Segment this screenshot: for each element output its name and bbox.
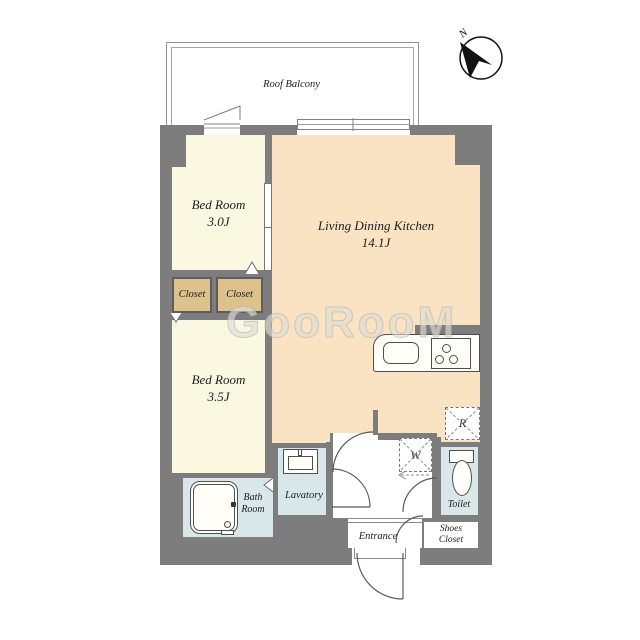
north-arrow-icon xyxy=(460,42,492,78)
compass-circle xyxy=(460,37,502,79)
toilet-bowl xyxy=(452,460,472,496)
ldk-label: Living Dining Kitchen14.1J xyxy=(272,218,480,251)
closet-1-label: Closet xyxy=(179,288,206,301)
partition-dashed-track xyxy=(267,137,270,184)
ldk-floor-extension xyxy=(272,433,330,443)
bathroom-label: BathRoom xyxy=(228,492,278,515)
bathtub-drain xyxy=(224,521,231,528)
floor-plan: Roof Balcony Closet Closet xyxy=(0,0,640,640)
closet-1: Closet xyxy=(172,277,212,313)
washbasin-bowl xyxy=(288,456,313,470)
lavatory-label: Lavatory xyxy=(276,489,332,502)
partition-tick xyxy=(264,227,272,228)
wall-door-stub xyxy=(373,410,378,435)
refrigerator-space: R xyxy=(445,407,480,440)
north-compass: N xyxy=(456,26,502,79)
wall-lavatory-right xyxy=(326,442,333,518)
stove-burner-right xyxy=(449,355,458,364)
entrance-label: Entrance xyxy=(340,530,416,543)
washer-space-label: W xyxy=(411,448,421,463)
compass-n-label: N xyxy=(456,26,471,41)
stove-burner-left xyxy=(435,355,444,364)
entry-landing xyxy=(354,548,406,559)
pillar-top-left xyxy=(160,125,186,167)
refrigerator-space-label: R xyxy=(459,416,466,431)
bedroom1-window-gap xyxy=(204,120,240,135)
shoes-closet-label: ShoesCloset xyxy=(424,524,478,546)
toilet-label: Toilet xyxy=(438,499,480,512)
washer-space: W xyxy=(399,438,432,472)
bedroom1-label: Bed Room3.0J xyxy=(172,197,265,230)
washbasin-tap xyxy=(298,449,302,456)
entrance-step-line-1 xyxy=(348,518,422,519)
room-ldk xyxy=(272,135,480,433)
ldk-window-gap xyxy=(297,116,410,135)
watermark: GooRooM xyxy=(226,298,457,348)
bedroom2-label: Bed Room3.5J xyxy=(172,372,265,405)
entrance-step-line-2 xyxy=(348,522,422,523)
bath-stool xyxy=(221,530,234,535)
pillar-top-right xyxy=(455,125,492,165)
roof-balcony-label: Roof Balcony xyxy=(166,78,417,91)
